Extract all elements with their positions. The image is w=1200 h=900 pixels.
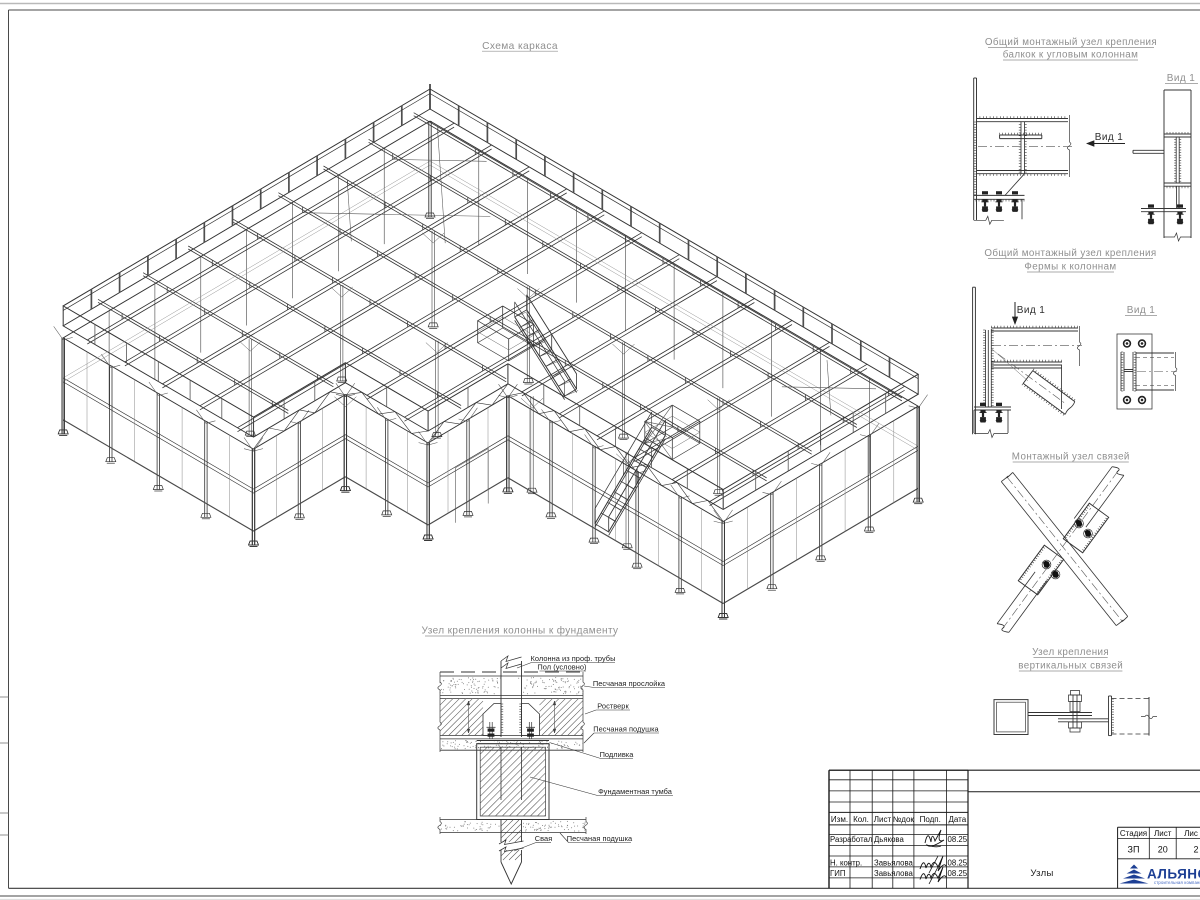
svg-text:Монтажный узел связей: Монтажный узел связей [1012, 452, 1130, 463]
svg-text:Подп.: Подп. [920, 815, 941, 824]
svg-text:Стадия: Стадия [1120, 829, 1147, 838]
svg-text:Общий монтажный узел крепления: Общий монтажный узел крепления [985, 37, 1157, 48]
svg-text:Узлы: Узлы [1030, 868, 1053, 879]
svg-text:Узел крепления колонны к фунда: Узел крепления колонны к фундаменту [422, 625, 619, 637]
svg-text:Песчаная подушка: Песчаная подушка [593, 725, 659, 734]
svg-text:Схема каркаса: Схема каркаса [482, 41, 558, 52]
svg-text:08.25: 08.25 [948, 835, 968, 844]
svg-text:08.25: 08.25 [948, 859, 968, 868]
svg-text:08.25: 08.25 [948, 869, 968, 878]
svg-text:20: 20 [1158, 845, 1168, 855]
svg-text:2: 2 [1193, 845, 1198, 855]
svg-text:Лис: Лис [1184, 829, 1198, 838]
svg-text:ГИП: ГИП [830, 869, 845, 878]
svg-text:Вид 1: Вид 1 [1127, 305, 1155, 316]
svg-text:балкок к угловым колоннам: балкок к угловым колоннам [1003, 50, 1139, 61]
svg-text:Фундаментная тумба: Фундаментная тумба [598, 787, 673, 796]
svg-text:Песчаная подушка: Песчаная подушка [567, 834, 633, 843]
svg-text:Кол.: Кол. [853, 815, 869, 824]
svg-text:Вид 1: Вид 1 [1095, 132, 1123, 143]
svg-text:Разработал: Разработал [830, 835, 873, 844]
svg-text:Свая: Свая [535, 834, 553, 843]
svg-text:Лист: Лист [874, 815, 892, 824]
svg-text:Дата: Дата [948, 815, 966, 824]
svg-text:ЗП: ЗП [1128, 845, 1140, 855]
svg-text:Пол (условно): Пол (условно) [537, 663, 586, 672]
svg-text:Фермы к колоннам: Фермы к колоннам [1024, 262, 1116, 273]
svg-text:вертикальных связей: вертикальных связей [1018, 661, 1123, 672]
svg-text:Ростверк: Ростверк [597, 702, 629, 711]
svg-text:№док: №док [893, 815, 915, 824]
svg-text:Завьялова: Завьялова [874, 859, 913, 868]
svg-text:Изм.: Изм. [831, 815, 848, 824]
svg-text:Лист: Лист [1154, 829, 1172, 838]
svg-text:Подливка: Подливка [600, 750, 635, 759]
svg-text:Дьякова: Дьякова [874, 835, 904, 844]
svg-text:Вид 1: Вид 1 [1017, 305, 1045, 316]
svg-text:Узел крепления: Узел крепления [1032, 647, 1109, 658]
svg-text:Песчаная прослойка: Песчаная прослойка [593, 679, 666, 688]
svg-text:Вид 1: Вид 1 [1167, 73, 1195, 84]
svg-text:Общий монтажный узел крепления: Общий монтажный узел крепления [984, 248, 1156, 259]
svg-text:Н. контр.: Н. контр. [830, 859, 862, 868]
svg-text:Завьялова: Завьялова [874, 869, 913, 878]
svg-text:строительная компания: строительная компания [1154, 880, 1200, 885]
